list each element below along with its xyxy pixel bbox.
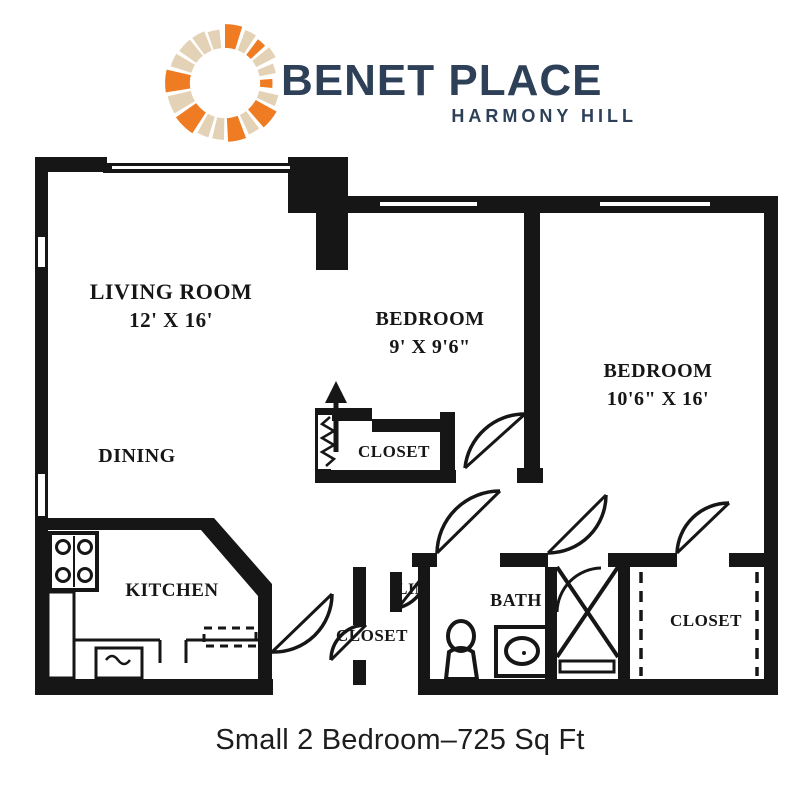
living-room-label: LIVING ROOM bbox=[90, 279, 253, 304]
bedroom1-closet-label: CLOSET bbox=[358, 442, 430, 461]
burner-icon bbox=[57, 541, 70, 554]
dining-window-icon bbox=[38, 474, 45, 516]
kitchen-counter-icon bbox=[48, 592, 74, 678]
burner-icon bbox=[57, 569, 70, 582]
flyer-page: { "logo": { "brand": "BENET PLACE", "tag… bbox=[0, 0, 800, 800]
plan-caption: Small 2 Bedroom–725 Sq Ft bbox=[0, 724, 800, 757]
living-room-dims: 12' X 16' bbox=[129, 308, 213, 332]
bedroom2-label: BEDROOM bbox=[603, 360, 712, 382]
kitchen-label: KITCHEN bbox=[125, 580, 218, 601]
bath-sink-icon bbox=[496, 627, 549, 676]
linen-label: LIN. bbox=[397, 581, 431, 598]
hall-closet-label: CLOSET bbox=[336, 626, 408, 645]
plan-walls bbox=[35, 157, 778, 695]
dining-label: DINING bbox=[98, 445, 175, 467]
burner-icon bbox=[79, 541, 92, 554]
dishwasher-icon bbox=[204, 628, 256, 646]
burner-icon bbox=[79, 569, 92, 582]
bath-label: BATH bbox=[490, 590, 542, 610]
bedroom2-dims: 10'6" X 16' bbox=[607, 388, 709, 410]
living-room-window-icon bbox=[112, 166, 290, 169]
door-swings bbox=[272, 414, 729, 660]
bedroom2-window-icon bbox=[600, 202, 710, 206]
left-wall-window-icon bbox=[38, 237, 45, 267]
floor-plan: LIVING ROOM 12' X 16' BEDROOM 9' X 9'6" … bbox=[0, 0, 800, 800]
bedroom1-window-icon bbox=[380, 202, 477, 206]
room-labels: LIVING ROOM 12' X 16' BEDROOM 9' X 9'6" … bbox=[90, 279, 742, 645]
bedroom1-label: BEDROOM bbox=[375, 308, 484, 330]
bedroom2-closet-label: CLOSET bbox=[670, 611, 742, 630]
bedroom1-dims: 9' X 9'6" bbox=[389, 336, 470, 358]
